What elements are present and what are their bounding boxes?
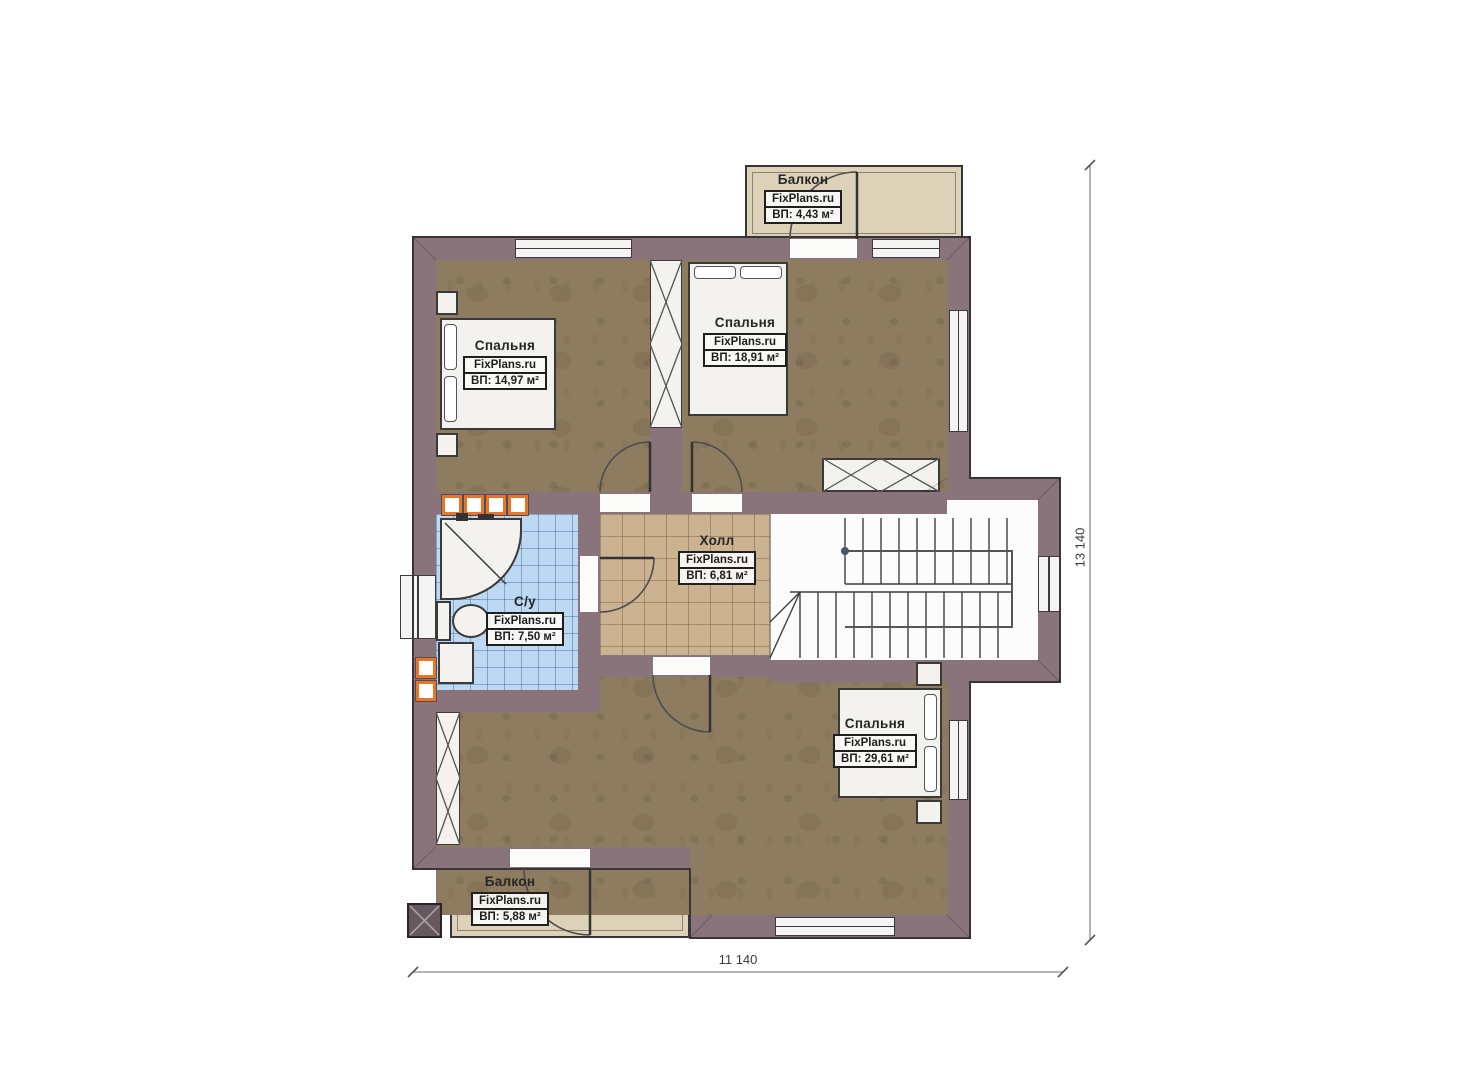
nightstand-icon	[436, 433, 458, 457]
room-area: ВП: 4,43 м²	[766, 208, 840, 222]
pillow-icon	[740, 266, 782, 279]
room-label-box: FixPlans.ru ВП: 6,81 м²	[678, 551, 756, 585]
room-label-hall: Холл FixPlans.ru ВП: 6,81 м²	[662, 533, 772, 585]
brand-watermark: FixPlans.ru	[835, 736, 915, 752]
brand-watermark: FixPlans.ru	[705, 335, 785, 351]
toilet-tank-icon	[436, 601, 451, 641]
wardrobe-bedroom2	[822, 458, 940, 492]
room-label-box: FixPlans.ru ВП: 5,88 м²	[471, 892, 549, 926]
dimension-height: 13 140	[1073, 503, 1088, 593]
door-opening-bathroom	[580, 556, 598, 612]
window-stair-bay	[1038, 556, 1060, 612]
brand-watermark: FixPlans.ru	[488, 614, 562, 630]
chimney-icon	[407, 903, 442, 938]
vent-marker-icon	[508, 495, 528, 515]
room-area: ВП: 5,88 м²	[473, 910, 547, 924]
floor-plan: Балкон FixPlans.ru ВП: 4,43 м² Спальня F…	[0, 0, 1473, 1080]
room-area: ВП: 6,81 м²	[680, 569, 754, 583]
room-area: ВП: 29,61 м²	[835, 752, 915, 766]
room-name: С/у	[470, 594, 580, 609]
door-opening-bedroom1	[600, 494, 650, 512]
window-bedroom2-right	[949, 310, 968, 432]
room-label-box: FixPlans.ru ВП: 29,61 м²	[833, 734, 917, 768]
room-area: ВП: 14,97 м²	[465, 374, 545, 388]
room-label-balcony-top: Балкон FixPlans.ru ВП: 4,43 м²	[748, 172, 858, 224]
room-label-bedroom3: Спальня FixPlans.ru ВП: 29,61 м²	[820, 716, 930, 768]
brand-watermark: FixPlans.ru	[766, 192, 840, 208]
room-label-bedroom2: Спальня FixPlans.ru ВП: 18,91 м²	[690, 315, 800, 367]
window-bedroom3-bottom	[775, 917, 895, 936]
wardrobe-bedroom3	[436, 712, 460, 845]
room-label-bedroom1: Спальня FixPlans.ru ВП: 14,97 м²	[450, 338, 560, 390]
dimension-width: 11 140	[678, 952, 798, 967]
door-opening-balcony-bottom	[510, 849, 590, 867]
pillow-icon	[694, 266, 736, 279]
sink-icon	[438, 642, 474, 684]
door-opening-bedroom2	[692, 494, 742, 512]
room-label-box: FixPlans.ru ВП: 14,97 м²	[463, 356, 547, 390]
vent-marker-icon	[486, 495, 506, 515]
door-opening-balcony-top	[790, 239, 857, 258]
room-area: ВП: 18,91 м²	[705, 351, 785, 365]
vent-marker-icon	[442, 495, 462, 515]
door-opening-bedroom3	[653, 657, 710, 675]
wall-left	[413, 237, 436, 869]
wall-partition-bedrooms	[650, 428, 682, 514]
room-area: ВП: 7,50 м²	[488, 630, 562, 644]
window-bedroom2-top	[872, 239, 940, 258]
room-label-balcony-bottom: Балкон FixPlans.ru ВП: 5,88 м²	[448, 874, 572, 926]
vent-marker-icon	[464, 495, 484, 515]
room-name: Балкон	[748, 172, 858, 187]
room-name: Спальня	[820, 716, 930, 731]
brand-watermark: FixPlans.ru	[465, 358, 545, 374]
room-label-bathroom: С/у FixPlans.ru ВП: 7,50 м²	[470, 594, 580, 646]
window-bedroom3-right	[949, 720, 968, 800]
brand-watermark: FixPlans.ru	[473, 894, 547, 910]
room-label-box: FixPlans.ru ВП: 7,50 м²	[486, 612, 564, 646]
brand-watermark: FixPlans.ru	[680, 553, 754, 569]
room-name: Холл	[662, 533, 772, 548]
vent-marker-icon	[416, 658, 436, 678]
room-label-box: FixPlans.ru ВП: 4,43 м²	[764, 190, 842, 224]
room-name: Спальня	[450, 338, 560, 353]
vent-marker-icon	[416, 681, 436, 701]
window-bathroom-left	[400, 575, 436, 639]
window-bedroom1-top	[515, 239, 632, 258]
room-name: Спальня	[690, 315, 800, 330]
wall-bath-bottom	[436, 690, 600, 712]
room-name: Балкон	[448, 874, 572, 889]
nightstand-icon	[916, 662, 942, 686]
wardrobe-between-bedrooms	[650, 260, 682, 428]
stair-bay-interior	[947, 500, 1038, 660]
nightstand-icon	[436, 291, 458, 315]
room-label-box: FixPlans.ru ВП: 18,91 м²	[703, 333, 787, 367]
nightstand-icon	[916, 800, 942, 824]
